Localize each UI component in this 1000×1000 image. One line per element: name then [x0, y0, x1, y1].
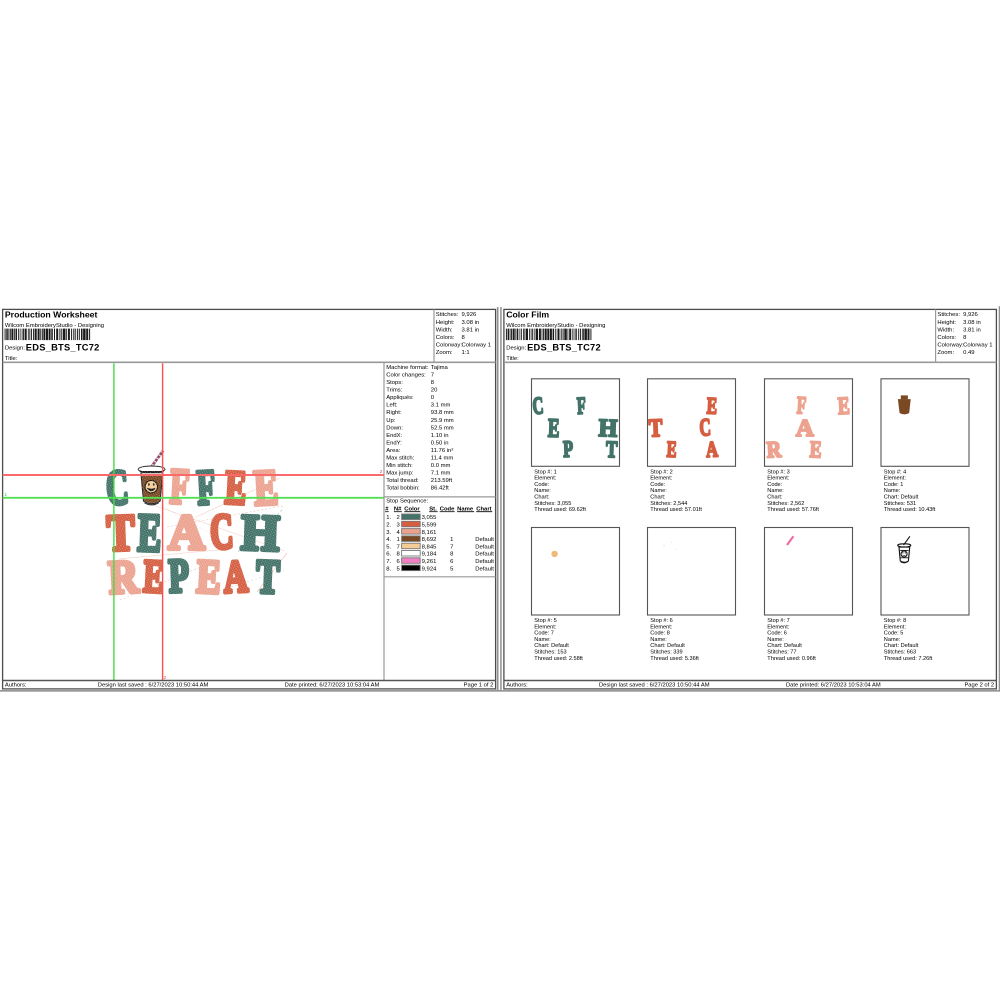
svg-text:Thread used: 5.36ft: Thread used: 5.36ft — [650, 656, 699, 662]
svg-text:Page 2 of 2: Page 2 of 2 — [964, 683, 994, 689]
svg-text:E: E — [547, 412, 560, 442]
svg-text:E: E — [809, 437, 822, 464]
svg-text:1:1: 1:1 — [462, 350, 470, 356]
svg-text:Stitches: 339: Stitches: 339 — [650, 650, 682, 656]
svg-text:Default: Default — [475, 559, 494, 565]
svg-text:Colorway 1: Colorway 1 — [963, 343, 992, 349]
svg-text:Thread used: 2.58ft: Thread used: 2.58ft — [534, 656, 583, 662]
svg-text:Chart: Default: Chart: Default — [650, 643, 685, 649]
svg-text:9,926: 9,926 — [963, 312, 978, 318]
svg-text:93.8 mm: 93.8 mm — [431, 410, 454, 416]
svg-text:Left:: Left: — [386, 403, 398, 409]
svg-text:Design:: Design: — [5, 345, 25, 351]
svg-text:EDS_BTS_TC72: EDS_BTS_TC72 — [26, 342, 100, 352]
svg-text:Code:: Code: — [767, 482, 782, 488]
svg-text:Name:: Name: — [534, 637, 551, 643]
svg-text:9,184: 9,184 — [422, 552, 437, 558]
svg-text:Name:: Name: — [650, 488, 667, 494]
svg-text:E: E — [837, 393, 850, 421]
svg-text:1.10 in: 1.10 in — [431, 433, 449, 439]
svg-text:Color changes:: Color changes: — [386, 372, 426, 378]
svg-text:25.9 mm: 25.9 mm — [431, 418, 454, 424]
svg-text:Area:: Area: — [386, 448, 400, 454]
svg-text:Stitches: 663: Stitches: 663 — [884, 650, 916, 656]
svg-text:Max stitch:: Max stitch: — [386, 456, 415, 462]
svg-text:3.81 in: 3.81 in — [963, 327, 981, 333]
svg-text:Tajima: Tajima — [431, 365, 449, 371]
svg-text:Code: 8: Code: 8 — [650, 631, 670, 637]
svg-text:Colorway:: Colorway: — [937, 343, 964, 349]
svg-text:3.81 in: 3.81 in — [462, 327, 480, 333]
svg-text:Zoom:: Zoom: — [937, 350, 954, 356]
svg-text:Element:: Element: — [650, 476, 673, 482]
svg-text:Page 1 of 2: Page 1 of 2 — [464, 683, 494, 689]
svg-text:Thread used: 10.43ft: Thread used: 10.43ft — [884, 507, 936, 513]
svg-text:Wilcom EmbroideryStudio - Desi: Wilcom EmbroideryStudio - Designing — [506, 323, 605, 329]
svg-text:Name:: Name: — [534, 488, 551, 494]
svg-text:Colors:: Colors: — [436, 335, 455, 341]
svg-text:Total bobbin:: Total bobbin: — [386, 486, 420, 492]
svg-text:Chart: Default: Chart: Default — [767, 643, 802, 649]
svg-text:11.76 in²: 11.76 in² — [431, 448, 454, 454]
svg-text:Thread used: 57.01ft: Thread used: 57.01ft — [650, 507, 702, 513]
svg-text:Element:: Element: — [884, 476, 907, 482]
svg-text:Height:: Height: — [937, 320, 956, 326]
svg-text:7: 7 — [450, 544, 453, 550]
svg-text:Element:: Element: — [650, 624, 673, 630]
svg-text:2.: 2. — [386, 523, 391, 529]
svg-text:Authors:: Authors: — [506, 683, 528, 689]
svg-text:Name:: Name: — [767, 488, 784, 494]
svg-text:Element:: Element: — [767, 624, 790, 630]
svg-text:7: 7 — [431, 372, 434, 378]
svg-text:Date printed: 6/27/2023 10:53:: Date printed: 6/27/2023 10:53:04 AM — [285, 683, 380, 689]
svg-text:3.08 in: 3.08 in — [462, 320, 480, 326]
svg-text:86.42ft: 86.42ft — [431, 486, 449, 492]
svg-text:C: C — [532, 392, 545, 420]
svg-text:Name:: Name: — [650, 637, 667, 643]
svg-text:8,161: 8,161 — [422, 530, 437, 536]
svg-text:0.49: 0.49 — [963, 350, 974, 356]
svg-text:Code: 7: Code: 7 — [534, 631, 554, 637]
svg-text:Element:: Element: — [534, 624, 557, 630]
svg-text:Title:: Title: — [5, 356, 18, 362]
svg-text:52.5 mm: 52.5 mm — [431, 425, 454, 431]
svg-text:Default: Default — [475, 544, 494, 550]
svg-text:Title:: Title: — [506, 356, 519, 362]
svg-text:0.50 in: 0.50 in — [431, 440, 449, 446]
svg-text:Name:: Name: — [884, 637, 901, 643]
svg-text:Chart:: Chart: — [767, 495, 783, 501]
svg-text:Total thread:: Total thread: — [386, 478, 419, 484]
svg-text:Chart: Default: Chart: Default — [884, 643, 919, 649]
svg-text:EDS_BTS_TC72: EDS_BTS_TC72 — [527, 342, 601, 352]
svg-text:EndX:: EndX: — [386, 433, 402, 439]
svg-text:Thread used: 69.62ft: Thread used: 69.62ft — [534, 507, 586, 513]
svg-text:Min stitch:: Min stitch: — [386, 463, 413, 469]
svg-text:6.: 6. — [386, 552, 391, 558]
svg-text:Zoom:: Zoom: — [436, 350, 453, 356]
svg-text:Stop #: 3: Stop #: 3 — [767, 469, 789, 475]
svg-text:Wilcom EmbroideryStudio - Desi: Wilcom EmbroideryStudio - Designing — [5, 323, 104, 329]
svg-text:Up:: Up: — [386, 418, 396, 424]
svg-text:Chart: Default: Chart: Default — [884, 495, 919, 501]
svg-text:Design last saved : 6/27/2023: Design last saved : 6/27/2023 10:50:44 A… — [599, 683, 710, 689]
svg-text:9,926: 9,926 — [462, 312, 477, 318]
svg-text:Stitches: 2,562: Stitches: 2,562 — [767, 501, 804, 507]
svg-text:5.: 5. — [386, 544, 391, 550]
svg-text:Machine format:: Machine format: — [386, 365, 429, 371]
svg-text:20: 20 — [431, 388, 438, 394]
svg-text:11.4 mm: 11.4 mm — [431, 456, 454, 462]
svg-text:8,845: 8,845 — [422, 544, 437, 550]
svg-text:Stops:: Stops: — [386, 380, 403, 386]
svg-text:Code: 5: Code: 5 — [884, 631, 904, 637]
svg-text:Max jump:: Max jump: — [386, 471, 414, 477]
svg-text:Stitches:: Stitches: — [436, 312, 459, 318]
svg-text:7.1 mm: 7.1 mm — [431, 471, 451, 477]
svg-text:Stitches: 531: Stitches: 531 — [884, 501, 916, 507]
svg-text:Chart:: Chart: — [534, 495, 550, 501]
svg-text:E: E — [666, 437, 677, 462]
svg-text:Code:: Code: — [650, 482, 665, 488]
svg-text:Design last saved : 6/27/2023: Design last saved : 6/27/2023 10:50:44 A… — [98, 683, 209, 689]
svg-text:Stitches: 77: Stitches: 77 — [767, 650, 796, 656]
svg-text:3.08 in: 3.08 in — [963, 320, 981, 326]
svg-text:Height:: Height: — [436, 320, 455, 326]
svg-text:2: 2 — [380, 469, 383, 474]
svg-text:7.: 7. — [386, 559, 391, 565]
svg-text:Stop #: 1: Stop #: 1 — [534, 469, 556, 475]
svg-text:Thread used: 0.96ft: Thread used: 0.96ft — [767, 656, 816, 662]
svg-text:0.0 mm: 0.0 mm — [431, 463, 451, 469]
svg-text:Color Film: Color Film — [506, 310, 549, 320]
svg-text:Stop #: 2: Stop #: 2 — [650, 469, 672, 475]
svg-text:Design:: Design: — [506, 345, 526, 351]
svg-text:R: R — [766, 436, 782, 463]
svg-text:Down:: Down: — [386, 425, 403, 431]
svg-text:3,055: 3,055 — [422, 515, 437, 521]
svg-text:Name:: Name: — [884, 488, 901, 494]
svg-text:A: A — [705, 436, 718, 462]
svg-text:Trims:: Trims: — [386, 388, 403, 394]
svg-text:Name:: Name: — [767, 637, 784, 643]
svg-text:Default: Default — [475, 537, 494, 543]
svg-text:Authors:: Authors: — [5, 683, 27, 689]
svg-text:T: T — [606, 437, 619, 463]
svg-text:EndY:: EndY: — [386, 440, 402, 446]
svg-text:Colors:: Colors: — [937, 335, 956, 341]
svg-text:5,599: 5,599 — [422, 523, 437, 529]
svg-text:1: 1 — [450, 537, 453, 543]
svg-text:Stitches:: Stitches: — [937, 312, 960, 318]
svg-text:Stop #: 8: Stop #: 8 — [884, 618, 906, 624]
svg-text:9,924: 9,924 — [422, 566, 437, 572]
svg-text:Stitches: 2,544: Stitches: 2,544 — [650, 501, 687, 507]
svg-text:P: P — [563, 436, 574, 462]
svg-text:8,692: 8,692 — [422, 537, 437, 543]
svg-text:Thread used: 57.76ft: Thread used: 57.76ft — [767, 507, 819, 513]
svg-text:Colorway 1: Colorway 1 — [462, 343, 491, 349]
svg-text:Stitches: 153: Stitches: 153 — [534, 650, 566, 656]
svg-text:Production Worksheet: Production Worksheet — [5, 310, 98, 320]
svg-text:Element:: Element: — [534, 476, 557, 482]
svg-text:4.: 4. — [386, 537, 391, 543]
svg-text:Stop #: 7: Stop #: 7 — [767, 618, 789, 624]
svg-text:3.: 3. — [386, 530, 391, 536]
svg-text:Thread used: 7.26ft: Thread used: 7.26ft — [884, 656, 933, 662]
svg-text:Default: Default — [475, 566, 494, 572]
svg-text:Chart: Default: Chart: Default — [534, 643, 569, 649]
svg-text:Width:: Width: — [436, 327, 453, 333]
svg-text:213.59ft: 213.59ft — [431, 478, 453, 484]
svg-text:Code:: Code: — [534, 482, 549, 488]
svg-text:2: 2 — [397, 515, 400, 521]
svg-text:1.: 1. — [386, 515, 391, 521]
svg-text:7: 7 — [397, 544, 400, 550]
svg-text:Code: 1: Code: 1 — [884, 482, 904, 488]
svg-text:3.1 mm: 3.1 mm — [431, 403, 451, 409]
svg-text:Default: Default — [475, 552, 494, 558]
svg-text:Element:: Element: — [884, 624, 907, 630]
svg-text:Code: 6: Code: 6 — [767, 631, 787, 637]
svg-text:T: T — [648, 414, 663, 442]
svg-text:Stop #: 4: Stop #: 4 — [884, 469, 906, 475]
svg-text:9,261: 9,261 — [422, 559, 437, 565]
svg-text:2: 2 — [164, 675, 167, 680]
svg-text:Stop #: 6: Stop #: 6 — [650, 618, 672, 624]
svg-text:Element:: Element: — [767, 476, 790, 482]
svg-text:Width:: Width: — [937, 327, 954, 333]
svg-text:Stop #: 5: Stop #: 5 — [534, 618, 556, 624]
svg-text:Chart:: Chart: — [650, 495, 666, 501]
svg-text:F: F — [576, 392, 586, 419]
svg-text:8.: 8. — [386, 566, 391, 572]
svg-text:Colorway:: Colorway: — [436, 343, 463, 349]
svg-text:Date printed: 6/27/2023 10:53:: Date printed: 6/27/2023 10:53:04 AM — [786, 683, 881, 689]
svg-text:1: 1 — [397, 537, 400, 543]
svg-text:Stitches: 3,055: Stitches: 3,055 — [534, 501, 571, 507]
svg-text:Right:: Right: — [386, 410, 402, 416]
svg-text:Stop Sequence:: Stop Sequence: — [386, 499, 428, 505]
svg-text:1: 1 — [5, 492, 8, 497]
svg-text:Appliqués:: Appliqués: — [386, 395, 414, 401]
